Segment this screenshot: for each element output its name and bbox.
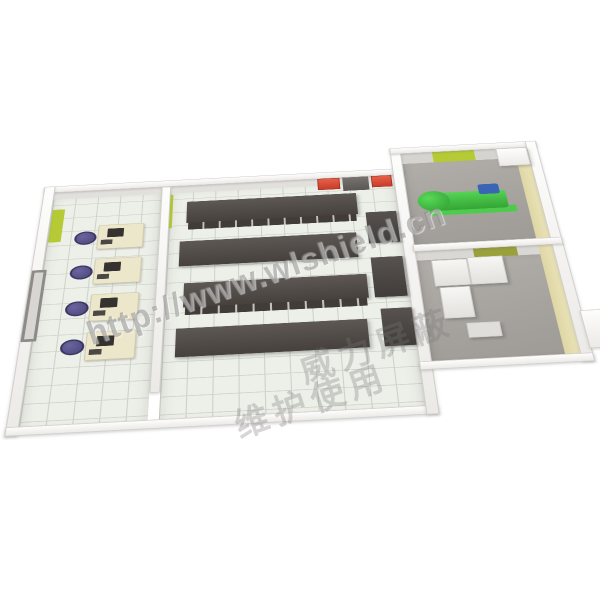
ups-cabinet-2 — [466, 256, 508, 285]
generator-unit — [419, 182, 524, 219]
generator-back-wall-accent — [432, 150, 476, 162]
workstation-4 — [58, 329, 136, 362]
fire-cabinet-left — [317, 178, 340, 190]
monitor — [107, 228, 124, 237]
annex-corner-column — [495, 147, 530, 166]
workstation-3 — [63, 292, 139, 323]
fire-cabinet-right — [371, 175, 393, 187]
workstation-2 — [68, 256, 142, 285]
keyboard — [89, 349, 102, 355]
monitor — [100, 297, 118, 307]
ups-cabinet-4 — [466, 321, 503, 338]
server-room-back-door — [342, 176, 369, 191]
generator-engine-blue — [477, 183, 500, 194]
keyboard — [97, 274, 109, 280]
office-chair — [69, 265, 93, 280]
ups-cabinet-1 — [431, 259, 472, 287]
floorplan-scene: http://www.wlshield.cn 威力屏蔽 维护使用 — [0, 0, 600, 600]
monitor — [96, 335, 115, 346]
building-3d-plan — [4, 141, 600, 437]
keyboard — [93, 310, 106, 316]
workstation-1 — [73, 223, 145, 251]
office-chair — [59, 339, 85, 356]
office-chair — [73, 231, 97, 245]
side-cabinet-2 — [371, 256, 408, 297]
office-chair — [64, 301, 89, 317]
side-cabinet-1 — [366, 211, 401, 244]
keyboard — [101, 239, 113, 244]
monitor — [103, 262, 121, 272]
ups-cabinet-3 — [439, 286, 475, 319]
side-cabinet-3 — [380, 307, 416, 346]
